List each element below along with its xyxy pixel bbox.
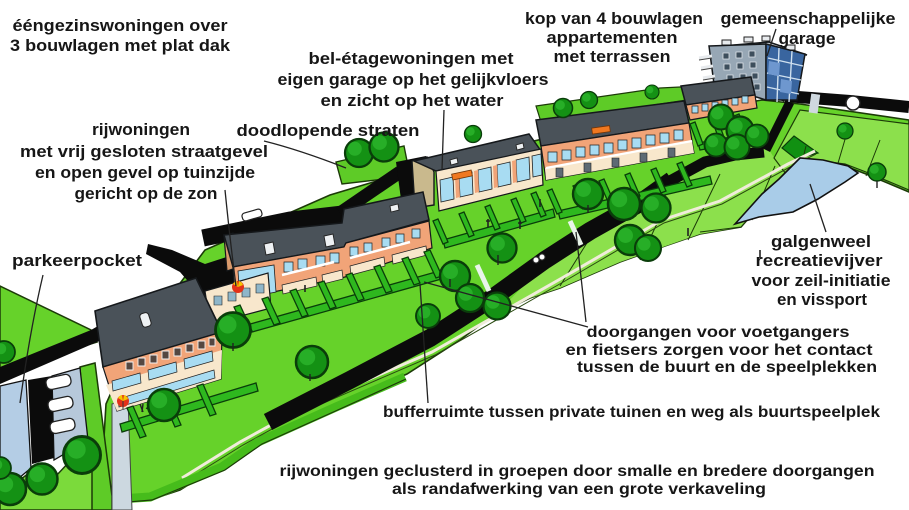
- svg-text:eigen garage op het gelijkvloe: eigen garage op het gelijkvloers: [278, 70, 549, 89]
- svg-text:bel-étagewoningen met: bel-étagewoningen met: [309, 49, 514, 68]
- svg-text:bufferruimte tussen private tu: bufferruimte tussen private tuinen en we…: [383, 404, 880, 421]
- svg-text:als randafwerking van een grot: als randafwerking van een grote verkavel…: [392, 481, 766, 498]
- svg-text:met terrassen: met terrassen: [554, 47, 671, 66]
- svg-text:garage: garage: [779, 29, 836, 48]
- svg-text:kop van 4 bouwlagen: kop van 4 bouwlagen: [525, 9, 703, 28]
- svg-text:galgenweel: galgenweel: [771, 232, 871, 251]
- svg-text:rijwoningen: rijwoningen: [92, 120, 190, 139]
- svg-text:gemeenschappelijke: gemeenschappelijke: [721, 9, 896, 28]
- svg-text:en open gevel op tuinzijde: en open gevel op tuinzijde: [35, 163, 255, 182]
- svg-text:voor zeil-initiatie: voor zeil-initiatie: [752, 271, 891, 290]
- svg-text:recreatievijver: recreatievijver: [756, 251, 883, 270]
- svg-text:doodlopende straten: doodlopende straten: [237, 121, 420, 140]
- svg-text:3 bouwlagen met plat dak: 3 bouwlagen met plat dak: [10, 36, 231, 55]
- svg-text:met vrij gesloten straatgevel: met vrij gesloten straatgevel: [20, 142, 268, 161]
- svg-text:parkeerpocket: parkeerpocket: [12, 251, 142, 270]
- svg-text:gericht op de zon: gericht op de zon: [75, 184, 218, 203]
- svg-text:en vissport: en vissport: [777, 290, 867, 309]
- svg-text:tussen de buurt en de speelple: tussen de buurt en de speelplekken: [577, 359, 877, 376]
- svg-text:en zicht op het water: en zicht op het water: [321, 91, 504, 110]
- svg-text:en fietsers zorgen voor het co: en fietsers zorgen voor het contact: [566, 342, 874, 359]
- svg-text:doorgangen voor voetgangers: doorgangen voor voetgangers: [587, 324, 850, 341]
- svg-text:appartementen: appartementen: [547, 28, 678, 47]
- svg-text:rijwoningen geclusterd in groe: rijwoningen geclusterd in groepen door s…: [280, 463, 875, 480]
- svg-text:ééngezinswoningen over: ééngezinswoningen over: [13, 16, 228, 35]
